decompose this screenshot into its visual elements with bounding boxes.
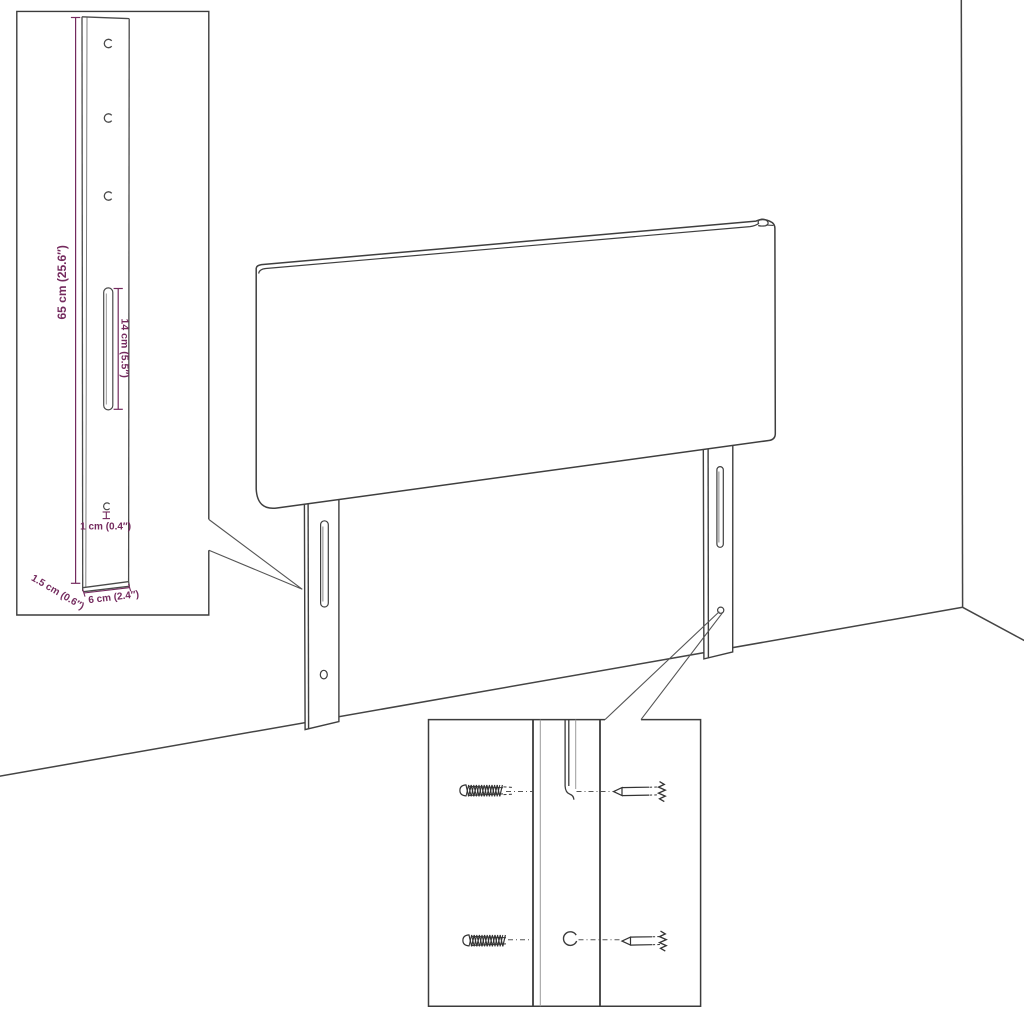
svg-text:1 cm (0.4″): 1 cm (0.4″) (80, 522, 131, 533)
svg-text:14 cm (5.5″): 14 cm (5.5″) (118, 319, 130, 378)
svg-text:65 cm (25.6″): 65 cm (25.6″) (55, 245, 69, 319)
